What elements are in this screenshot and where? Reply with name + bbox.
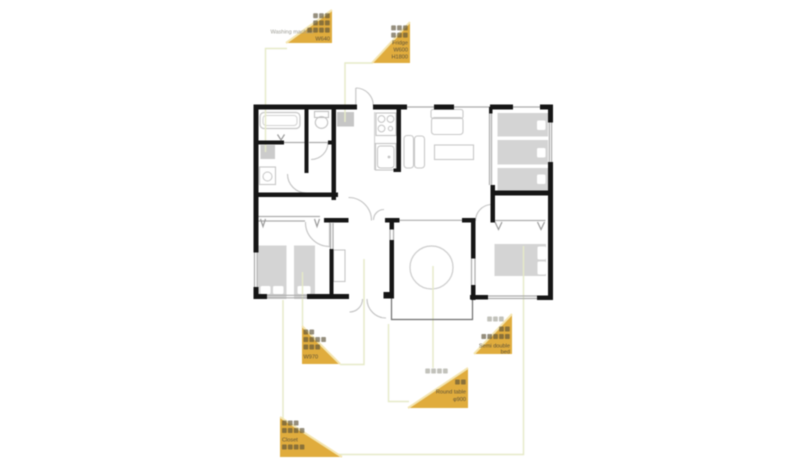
svg-text:H1800: H1800 bbox=[392, 55, 408, 61]
svg-text:Closet: Closet bbox=[282, 438, 298, 444]
svg-text:W970: W970 bbox=[304, 355, 319, 361]
svg-text:bed: bed bbox=[501, 350, 510, 356]
svg-text:Round table: Round table bbox=[436, 390, 466, 396]
svg-text:W640: W640 bbox=[315, 37, 330, 43]
svg-text:φ900: φ900 bbox=[453, 397, 466, 403]
svg-text:W600: W600 bbox=[393, 48, 408, 54]
svg-text:Fridge: Fridge bbox=[392, 41, 408, 47]
